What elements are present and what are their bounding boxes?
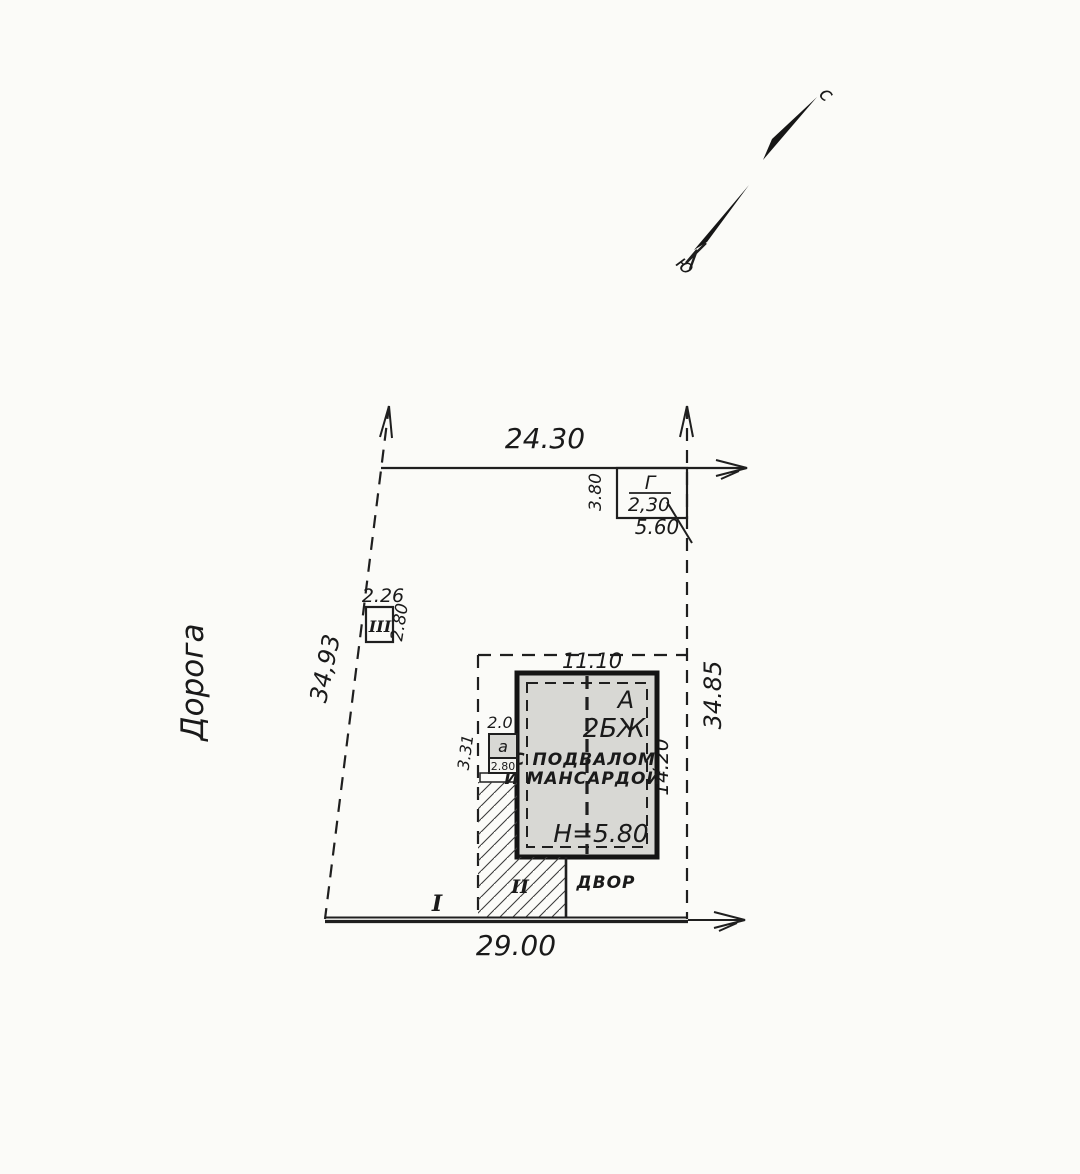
right-boundary-label: 34.85 <box>699 661 727 730</box>
compass-north-needle <box>763 97 817 160</box>
left-boundary: 34,93 <box>304 406 392 919</box>
site-plan-svg: с ю Дорога 24.30 34,93 34.85 Г 2,30 3.80… <box>0 0 1080 1174</box>
structure-g-length: 5.60 <box>635 515 680 539</box>
road-label: Дорога <box>175 623 211 742</box>
section-ii-label: II <box>510 876 530 898</box>
structure-a-inner-dim: 2.80 <box>491 760 516 773</box>
structure-iii: III 2.26 2.80 <box>362 585 413 642</box>
structure-g-depth: 3.80 <box>586 473 606 511</box>
building-desc-line2: И МАНСАРДОЙ <box>504 767 661 789</box>
scanned-site-plan: с ю Дорога 24.30 34,93 34.85 Г 2,30 3.80… <box>0 0 1080 1174</box>
left-boundary-label: 34,93 <box>304 632 346 705</box>
structure-a-depth: 3.31 <box>454 733 478 771</box>
compass: с ю <box>671 81 838 279</box>
plot-width-label: 11.10 <box>562 649 622 673</box>
section-i-label: I <box>431 891 443 917</box>
bottom-boundary: 29.00 <box>325 912 745 962</box>
compass-north-label: с <box>815 81 839 106</box>
structure-g-label: Г <box>645 472 657 494</box>
structure-g: Г 2,30 3.80 5.60 <box>586 468 692 543</box>
yard-label: ДВОР <box>575 873 635 893</box>
structure-g-width: 2,30 <box>628 494 670 516</box>
structure-a-width: 2.0 <box>487 713 512 732</box>
right-arrow-icon <box>716 460 747 479</box>
structure-a-label: а <box>498 737 508 756</box>
bottom-dimension-label: 29.00 <box>476 929 556 962</box>
building-desc-line1: С ПОДВАЛОМ <box>512 750 656 770</box>
building-height: Н=5.80 <box>553 819 648 848</box>
right-arrow-icon <box>714 912 745 931</box>
top-dimension-label: 24.30 <box>505 422 585 455</box>
building-type: 2БЖ <box>583 714 646 744</box>
structure-a: 2.0 а 2.80 3.31 <box>454 713 517 782</box>
compass-south-needle <box>694 185 749 250</box>
main-building: А 2БЖ С ПОДВАЛОМ И МАНСАРДОЙ Н=5.80 <box>504 673 661 857</box>
building-litera: А <box>616 686 634 714</box>
